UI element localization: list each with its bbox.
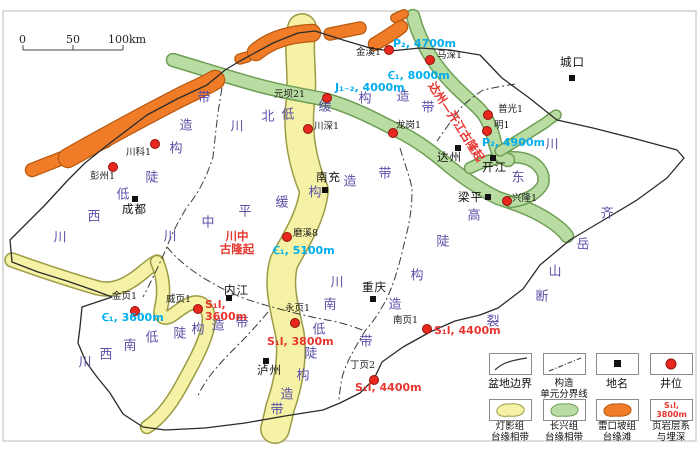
legend-label-well-location: 井位 bbox=[636, 378, 700, 390]
legend-label-shale-series-depth: 页岩层系与埋深 bbox=[636, 421, 700, 443]
legend-symbol-shale-series-depth: S₁l,3800m bbox=[650, 399, 693, 421]
legend-symbol-unit-boundary bbox=[543, 353, 586, 375]
legend-symbol-leikoupo-margin-shoal bbox=[596, 399, 639, 421]
legend-symbol-place-name bbox=[596, 353, 639, 375]
legend-shale-sample-text: S₁l,3800m bbox=[651, 400, 692, 420]
legend: 盆地边界构造单元分界线地名井位灯影组台缘相带长兴组台缘相带雷口坡组台缘滩S₁l,… bbox=[0, 0, 700, 456]
geological-map-figure: 0 50 100km 川西低陡构造带川北低缓构造带川中平缓构造带川东高陡构造带川… bbox=[0, 0, 700, 456]
legend-symbol-well-location bbox=[650, 353, 693, 375]
legend-symbol-changxing-platform-margin bbox=[543, 399, 586, 421]
legend-symbol-dengying-platform-margin bbox=[489, 399, 532, 421]
legend-symbol-basin-boundary bbox=[489, 353, 532, 375]
